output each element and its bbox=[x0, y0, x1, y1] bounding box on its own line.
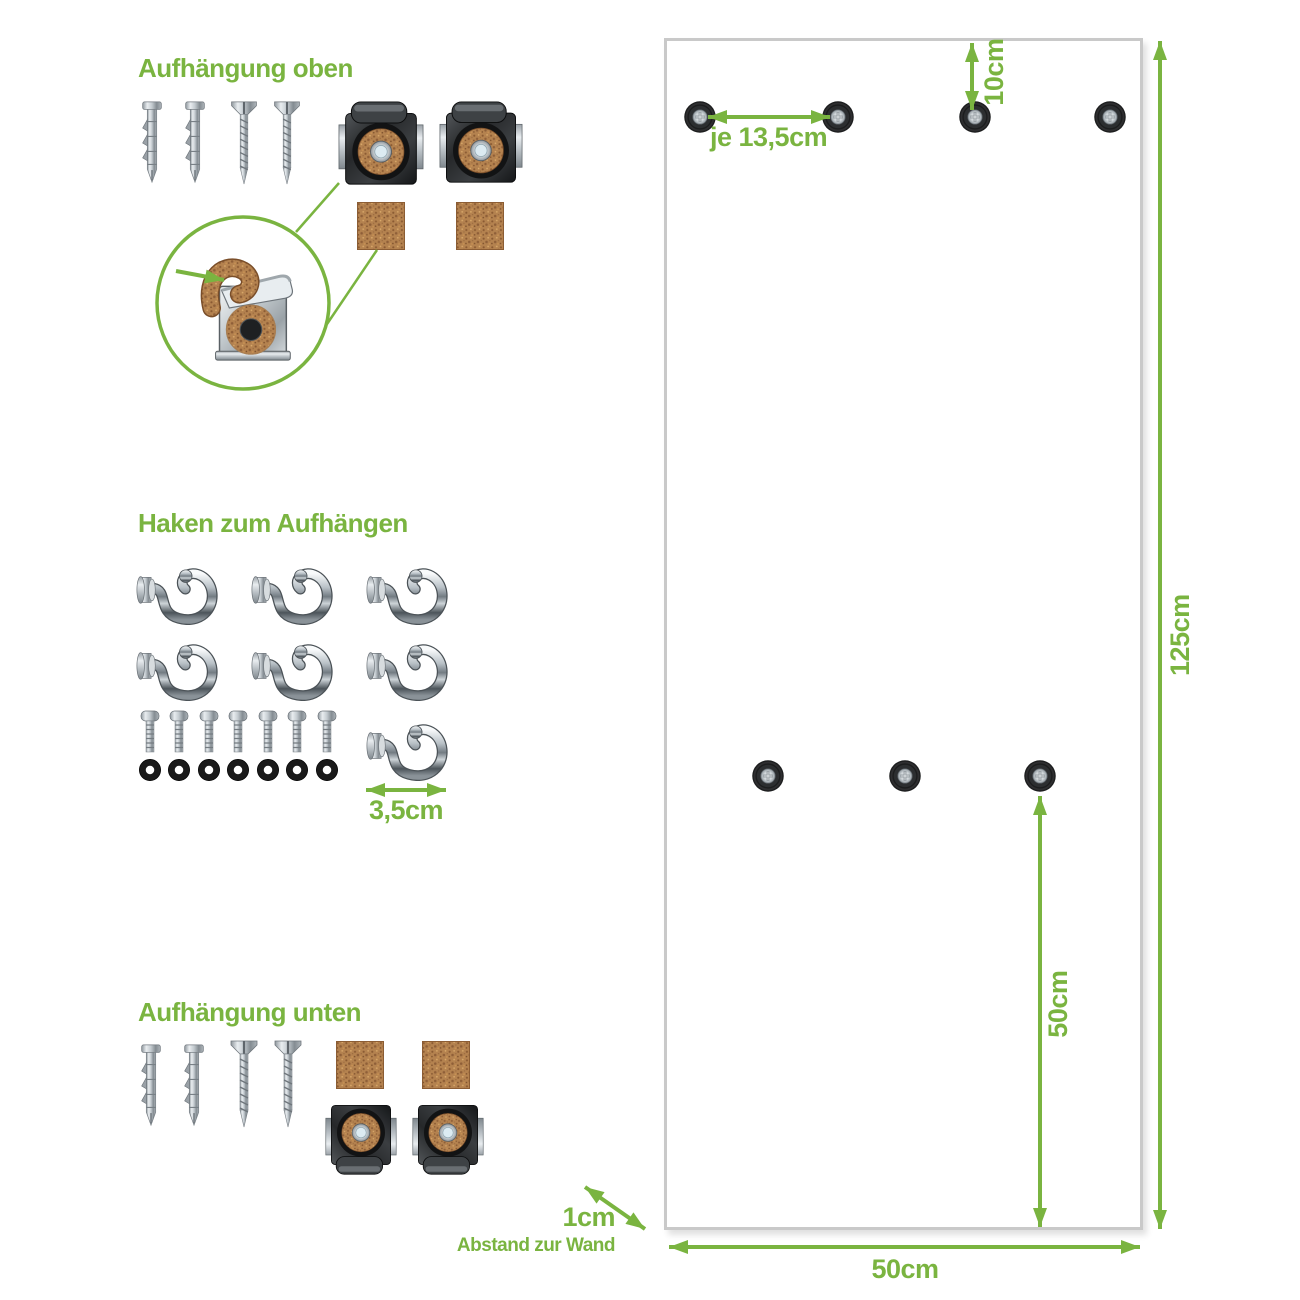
wall-plug-icon bbox=[138, 100, 166, 186]
callout-line-cork bbox=[325, 250, 377, 327]
cork-pad-icon bbox=[422, 1041, 470, 1089]
cork-pad-icon bbox=[336, 1041, 384, 1089]
label-bottom-hole-offset: 50cm bbox=[1044, 966, 1072, 1042]
bolt-icon bbox=[168, 710, 190, 754]
drill-hole-mid-2 bbox=[887, 758, 923, 794]
screw-icon bbox=[271, 100, 303, 186]
screw-icon bbox=[228, 1038, 260, 1130]
wall-plug-icon bbox=[181, 100, 209, 186]
cork-pad-icon bbox=[357, 202, 405, 250]
washer-icon bbox=[197, 758, 221, 782]
bolt-icon bbox=[257, 710, 279, 754]
washer-icon bbox=[226, 758, 250, 782]
drill-hole-mid-3 bbox=[1022, 758, 1058, 794]
label-top-offset: 10cm bbox=[980, 35, 1008, 109]
mounting-clip-bottom-icon bbox=[412, 1102, 484, 1176]
screw-icon bbox=[272, 1038, 304, 1130]
mounting-clip-top-icon bbox=[338, 100, 424, 188]
callout-line-clip bbox=[296, 183, 339, 232]
drill-hole-mid-1 bbox=[750, 758, 786, 794]
bolt-icon bbox=[286, 710, 308, 754]
mounting-clip-bottom-icon bbox=[325, 1102, 397, 1176]
bolt-icon bbox=[227, 710, 249, 754]
label-wall-distance: 1cm bbox=[515, 1203, 615, 1231]
drill-hole-top-4 bbox=[1092, 99, 1128, 135]
washer-icon bbox=[167, 758, 191, 782]
top-mount-title: Aufhängung oben bbox=[138, 55, 353, 82]
installation-diagram: Aufhängung oben Haken zum Aufhängen bbox=[0, 0, 1300, 1300]
washer-icon bbox=[138, 758, 162, 782]
cork-pad-icon bbox=[456, 202, 504, 250]
glass-panel-outline bbox=[664, 38, 1143, 1230]
screw-icon bbox=[228, 100, 260, 186]
hook-icon bbox=[365, 710, 449, 781]
label-height: 125cm bbox=[1166, 589, 1194, 681]
hook-icon bbox=[135, 630, 219, 701]
bolt-icon bbox=[198, 710, 220, 754]
washer-icon bbox=[285, 758, 309, 782]
bottom-mount-title: Aufhängung unten bbox=[138, 999, 361, 1026]
hook-icon bbox=[365, 630, 449, 701]
clip-detail-magnified bbox=[192, 247, 305, 370]
bolt-icon bbox=[139, 710, 161, 754]
washer-icon bbox=[256, 758, 280, 782]
label-hook-size: 3,5cm bbox=[360, 796, 452, 824]
hook-icon bbox=[365, 554, 449, 625]
washer-icon bbox=[315, 758, 339, 782]
wall-plug-icon bbox=[180, 1040, 208, 1132]
hook-icon bbox=[250, 554, 334, 625]
hook-icon bbox=[135, 554, 219, 625]
label-hole-spacing: je 13,5cm bbox=[710, 123, 827, 151]
label-width: 50cm bbox=[820, 1255, 990, 1283]
hooks-title: Haken zum Aufhängen bbox=[138, 510, 408, 537]
wall-plug-icon bbox=[137, 1040, 165, 1132]
label-wall-distance-caption: Abstand zur Wand bbox=[420, 1236, 615, 1256]
mounting-clip-top-icon bbox=[439, 100, 523, 186]
hook-icon bbox=[250, 630, 334, 701]
bolt-icon bbox=[316, 710, 338, 754]
